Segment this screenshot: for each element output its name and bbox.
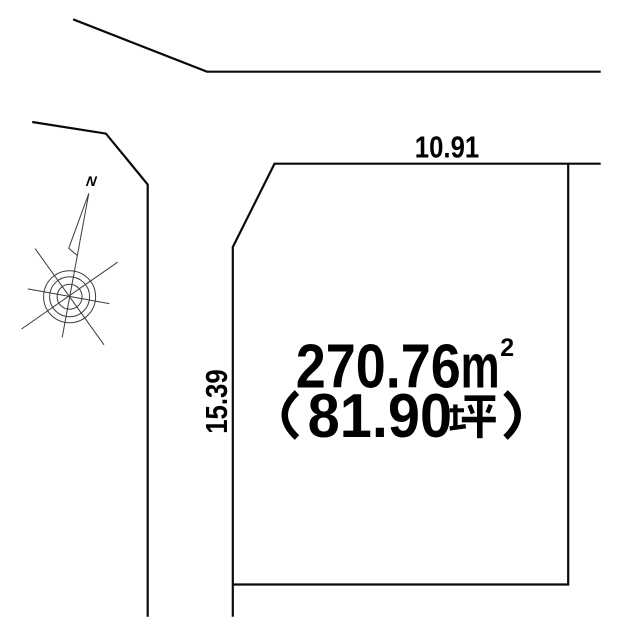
svg-text:m: m bbox=[461, 332, 500, 401]
svg-text:15.39: 15.39 bbox=[200, 369, 234, 434]
svg-text:10.91: 10.91 bbox=[415, 131, 479, 165]
svg-text:81.90: 81.90 bbox=[308, 382, 453, 451]
svg-text:2: 2 bbox=[500, 334, 514, 362]
